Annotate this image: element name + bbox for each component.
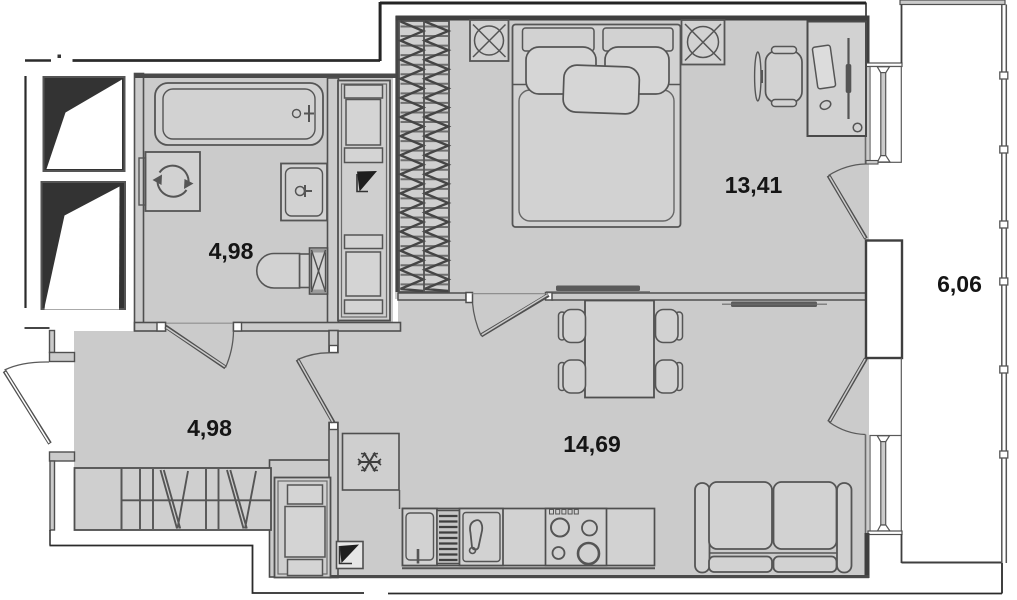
svg-text:6,06: 6,06 [937, 271, 982, 297]
svg-text:4,98: 4,98 [187, 415, 232, 441]
svg-text:4,98: 4,98 [209, 238, 254, 264]
svg-text:13,41: 13,41 [725, 172, 783, 198]
svg-text:14,69: 14,69 [563, 431, 621, 457]
